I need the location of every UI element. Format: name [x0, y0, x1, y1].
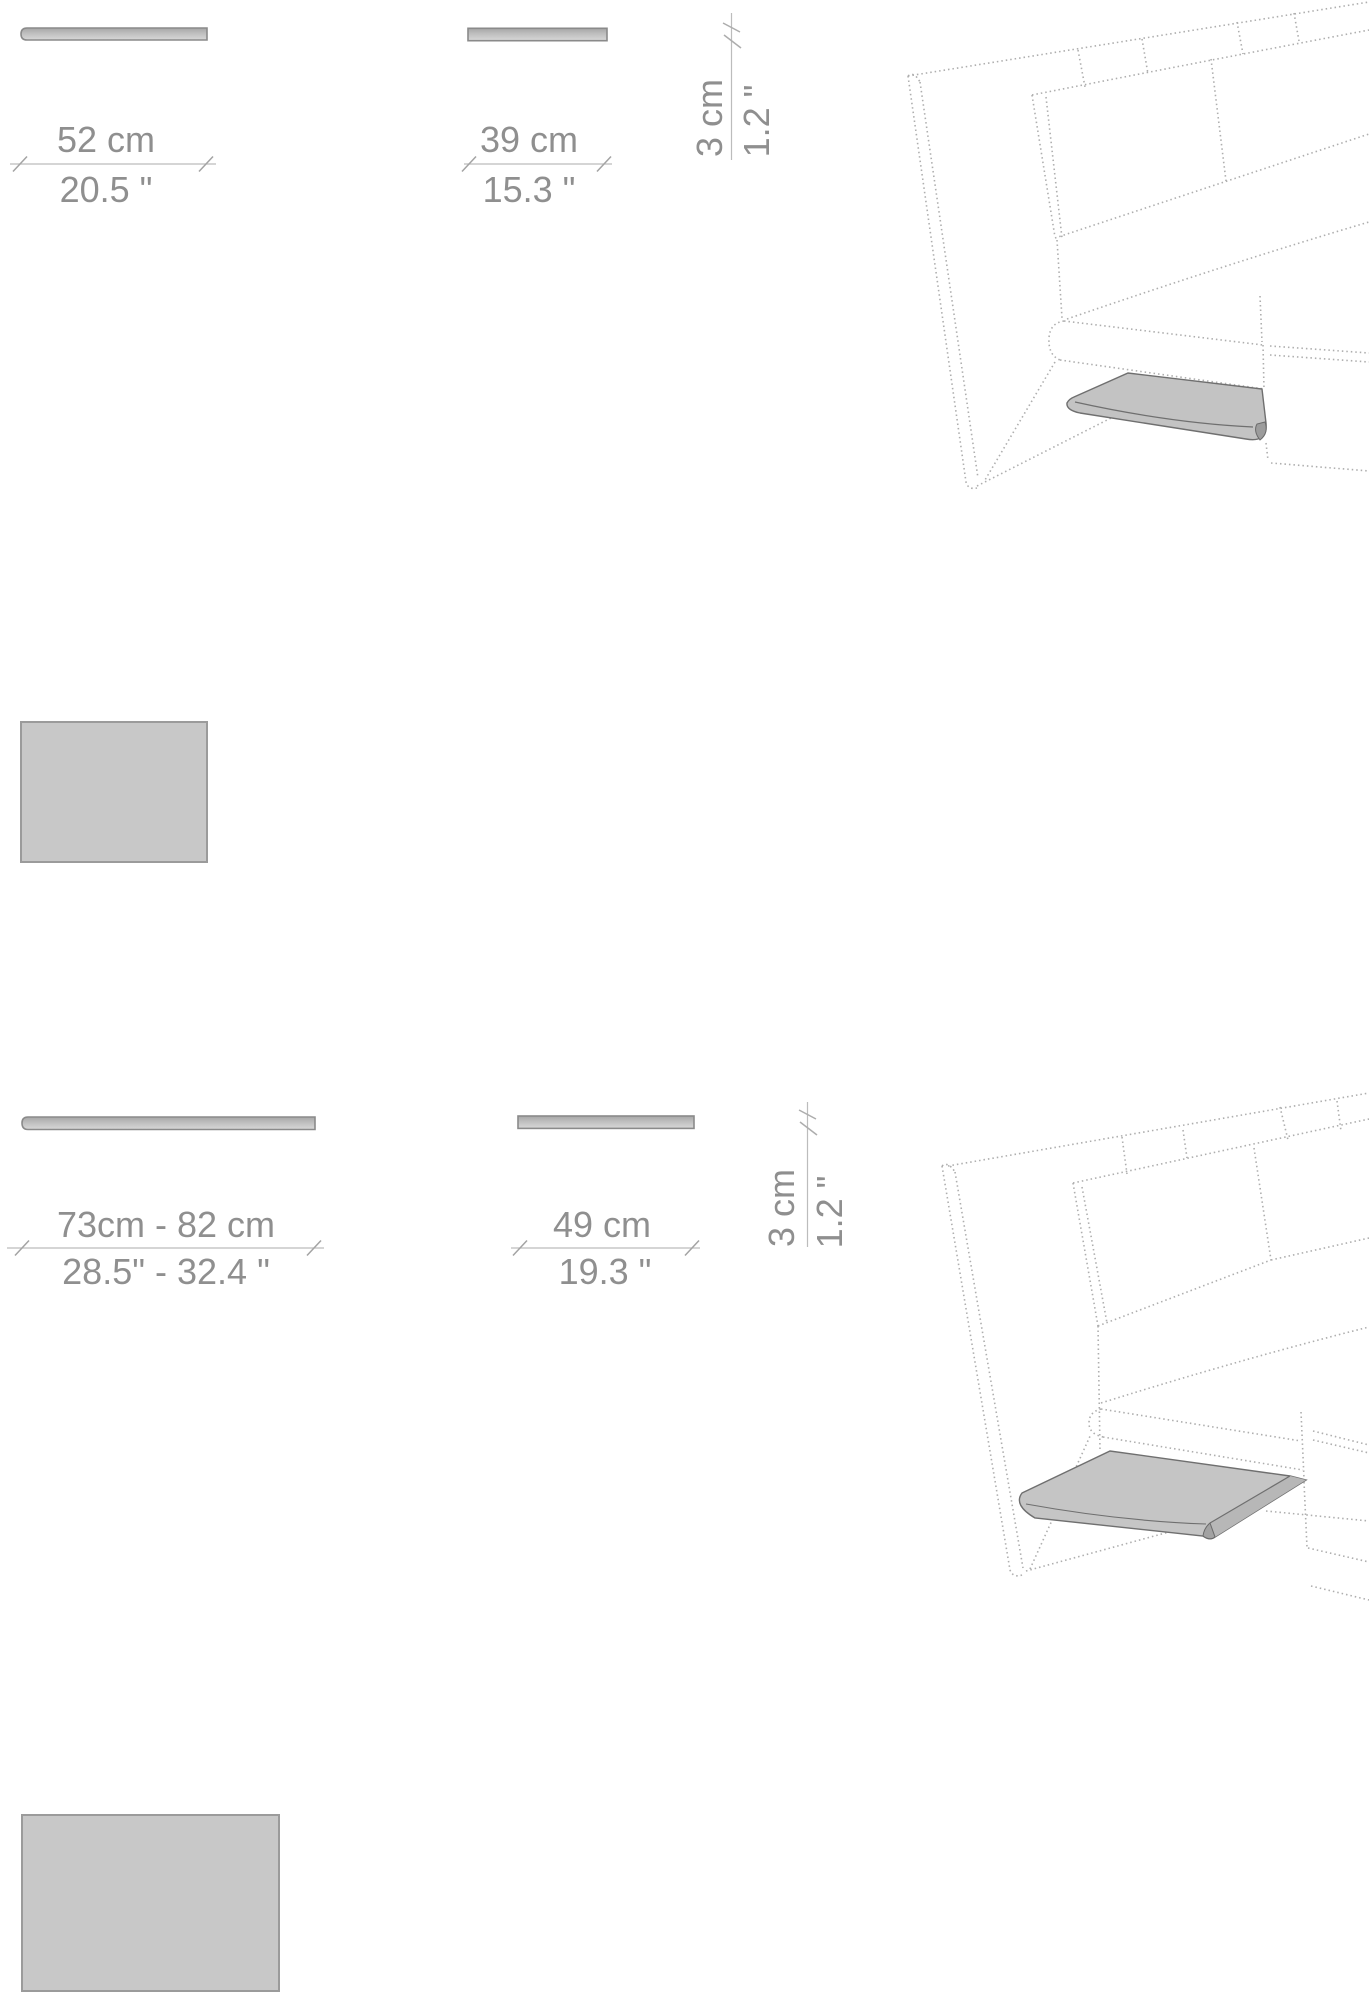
svg-text:3 cm: 3 cm — [689, 79, 730, 157]
svg-text:49 cm: 49 cm — [553, 1204, 651, 1245]
svg-text:3 cm: 3 cm — [761, 1169, 802, 1247]
svg-text:1.2 ": 1.2 " — [809, 1176, 850, 1249]
svg-text:52 cm: 52 cm — [57, 119, 155, 160]
svg-text:28.5" - 32.4 ": 28.5" - 32.4 " — [62, 1251, 270, 1292]
svg-text:19.3 ": 19.3 " — [559, 1251, 652, 1292]
svg-text:15.3 ": 15.3 " — [483, 169, 576, 210]
svg-text:39 cm: 39 cm — [480, 119, 578, 160]
svg-text:20.5 ": 20.5 " — [60, 169, 153, 210]
svg-text:1.2 ": 1.2 " — [736, 85, 777, 158]
svg-text:73cm - 82 cm: 73cm - 82 cm — [57, 1204, 275, 1245]
